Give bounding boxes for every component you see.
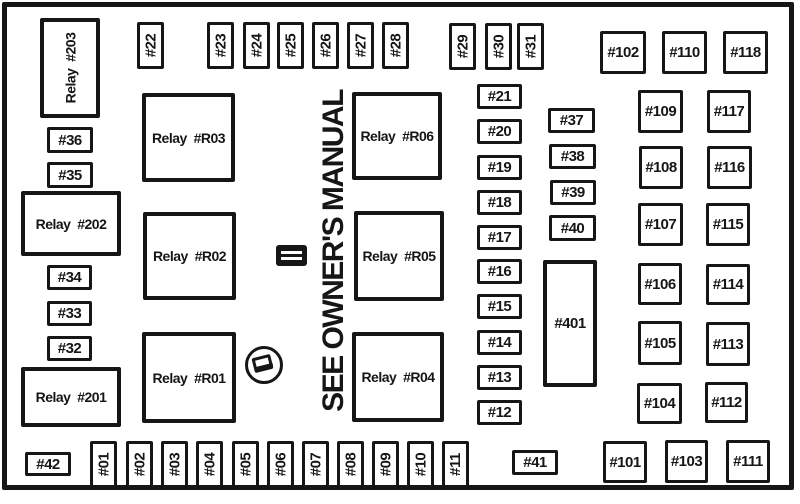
- fuse-02-label: #02: [131, 453, 148, 477]
- fuse-18-box: #18: [477, 190, 522, 215]
- fuse-40-label: #40: [561, 220, 585, 237]
- relay-203-box: Relay #203: [40, 18, 100, 118]
- fuse-27-box: #27: [347, 22, 374, 69]
- fuse-24-label: #24: [248, 34, 265, 58]
- relay-201-box: Relay #201: [21, 367, 121, 427]
- fuse-41-box: #41: [512, 450, 558, 475]
- fuse-110-label: #110: [669, 44, 700, 61]
- fuse-20-label: #20: [488, 123, 512, 140]
- fuse-17-label: #17: [488, 229, 512, 246]
- fuse-105-label: #105: [644, 335, 675, 352]
- fuse-05-box: #05: [232, 441, 259, 488]
- fuse-15-box: #15: [477, 294, 522, 319]
- fuse-36-box: #36: [47, 127, 93, 153]
- relay-r05-label: Relay #R05: [362, 248, 435, 264]
- fuse-24-box: #24: [243, 22, 270, 69]
- fuse-32-label: #32: [58, 340, 82, 357]
- fuse-106-box: #106: [638, 263, 682, 305]
- fuse-29-box: #29: [449, 23, 476, 70]
- fuse-114-box: #114: [706, 264, 750, 305]
- fuse-10-box: #10: [407, 441, 434, 488]
- fuse-puller-icon: [245, 346, 283, 384]
- fuse-33-label: #33: [58, 305, 82, 322]
- fuse-111-label: #111: [733, 453, 763, 470]
- fuse-08-label: #08: [342, 453, 359, 477]
- fuse-108-box: #108: [639, 146, 683, 189]
- fuse-35-label: #35: [58, 167, 82, 184]
- relay-r06-box: Relay #R06: [352, 92, 442, 180]
- fuse-102-label: #102: [607, 44, 638, 61]
- fuse-06-box: #06: [267, 441, 294, 488]
- fuse-15-label: #15: [488, 298, 512, 315]
- relay-r03-label: Relay #R03: [152, 130, 225, 146]
- fuse-116-label: #116: [714, 159, 745, 176]
- fuse-18-label: #18: [488, 194, 512, 211]
- fuse-26-box: #26: [312, 22, 339, 69]
- relay-r01-label: Relay #R01: [152, 370, 225, 386]
- fuse-12-box: #12: [477, 400, 522, 425]
- fuse-42-box: #42: [25, 452, 71, 476]
- fuse-05-label: #05: [237, 453, 254, 477]
- relay-r04-label: Relay #R04: [361, 369, 434, 385]
- fuse-103-label: #103: [671, 453, 702, 470]
- fuse-109-box: #109: [638, 90, 683, 133]
- fuse-115-box: #115: [706, 203, 750, 246]
- fuse-113-label: #113: [713, 336, 744, 353]
- relay-202-box: Relay #202: [21, 191, 121, 256]
- fuse-104-label: #104: [644, 395, 675, 412]
- fuse-105-box: #105: [638, 321, 682, 365]
- fuse-02-box: #02: [126, 441, 153, 488]
- fuse-16-label: #16: [488, 263, 512, 280]
- fuse-23-box: #23: [207, 22, 234, 69]
- fuse-34-box: #34: [47, 265, 92, 290]
- fuse-25-box: #25: [277, 22, 304, 69]
- relay-r03-box: Relay #R03: [142, 93, 235, 182]
- fuse-113-box: #113: [706, 322, 750, 366]
- fuse-09-label: #09: [377, 453, 394, 477]
- fuse-116-box: #116: [707, 146, 752, 189]
- fuse-28-box: #28: [382, 22, 409, 69]
- relay-r02-label: Relay #R02: [153, 248, 226, 264]
- fuse-117-box: #117: [707, 90, 751, 133]
- fuse-31-label: #31: [522, 35, 539, 59]
- fuse-102-box: #102: [600, 31, 646, 74]
- fuse-101-box: #101: [603, 441, 647, 483]
- fuse-01-label: #01: [95, 453, 112, 477]
- fuse-118-box: #118: [723, 31, 768, 74]
- fuse-27-label: #27: [352, 34, 369, 58]
- fuse-41-label: #41: [523, 454, 547, 471]
- fuse-11-box: #11: [442, 441, 469, 488]
- fuse-114-label: #114: [713, 276, 744, 293]
- fuse-13-label: #13: [488, 369, 512, 386]
- fuse-33-box: #33: [47, 301, 92, 326]
- relay-r05-box: Relay #R05: [354, 211, 444, 301]
- fuse-16-box: #16: [477, 259, 522, 284]
- fuse-12-label: #12: [488, 404, 512, 421]
- fuse-04-label: #04: [201, 453, 218, 477]
- fuse-40-box: #40: [549, 215, 596, 241]
- fuse-34-label: #34: [58, 269, 82, 286]
- fuse-06-label: #06: [272, 453, 289, 477]
- fuse-103-box: #103: [665, 440, 708, 483]
- fuse-14-box: #14: [477, 330, 522, 355]
- fuse-42-label: #42: [36, 456, 60, 473]
- fuse-19-label: #19: [488, 159, 512, 176]
- fuse-20-box: #20: [477, 119, 522, 144]
- fuse-117-label: #117: [714, 103, 745, 120]
- fuse-111-box: #111: [726, 440, 770, 483]
- fuse-symbol-slot: [281, 257, 302, 260]
- fuse-37-box: #37: [548, 108, 595, 133]
- relay-r02-box: Relay #R02: [143, 212, 236, 300]
- fuse-01-box: #01: [90, 441, 117, 488]
- fuse-101-label: #101: [609, 454, 640, 471]
- relay-201-label: Relay #201: [36, 389, 107, 405]
- fuse-22-label: #22: [142, 34, 159, 58]
- fuse-21-box: #21: [477, 84, 522, 109]
- fuse-36-label: #36: [58, 132, 82, 149]
- fuse-13-box: #13: [477, 365, 522, 390]
- see-owners-manual-note: SEE OWNER'S MANUAL: [316, 101, 352, 401]
- fuse-10-label: #10: [412, 453, 429, 477]
- fuse-112-label: #112: [711, 394, 742, 411]
- fuse-39-box: #39: [550, 180, 596, 205]
- fuse-04-box: #04: [196, 441, 223, 488]
- fuse-17-box: #17: [477, 225, 522, 250]
- relay-r01-box: Relay #R01: [142, 332, 236, 423]
- fuse-401-label: #401: [554, 315, 585, 332]
- fuse-11-label: #11: [447, 453, 464, 476]
- relay-r04-box: Relay #R04: [352, 332, 444, 422]
- fuse-23-label: #23: [212, 34, 229, 58]
- fuse-35-box: #35: [47, 162, 93, 188]
- fuse-symbol-icon: [276, 245, 307, 266]
- fuse-108-label: #108: [645, 159, 676, 176]
- fuse-03-label: #03: [166, 453, 183, 477]
- fuse-21-label: #21: [488, 88, 512, 105]
- fuse-box-diagram: Relay #203#36#35Relay #202#34#33#32Relay…: [0, 0, 800, 504]
- fuse-08-box: #08: [337, 441, 364, 488]
- fuse-38-label: #38: [561, 148, 585, 165]
- fuse-37-label: #37: [560, 112, 584, 129]
- fuse-30-label: #30: [490, 35, 507, 59]
- fuse-03-box: #03: [161, 441, 188, 488]
- relay-203-label: Relay #203: [62, 33, 78, 104]
- fuse-22-box: #22: [137, 22, 164, 69]
- fuse-09-box: #09: [372, 441, 399, 488]
- fuse-115-label: #115: [713, 216, 744, 233]
- relay-r06-label: Relay #R06: [360, 128, 433, 144]
- fuse-31-box: #31: [517, 23, 544, 70]
- fuse-07-label: #07: [307, 453, 324, 477]
- fuse-106-label: #106: [644, 276, 675, 293]
- fuse-32-box: #32: [47, 336, 92, 361]
- fuse-29-label: #29: [454, 35, 471, 59]
- fuse-118-label: #118: [730, 44, 761, 61]
- fuse-112-box: #112: [705, 382, 748, 423]
- fuse-104-box: #104: [637, 383, 682, 424]
- fuse-401-box: #401: [543, 260, 597, 387]
- fuse-30-box: #30: [485, 23, 512, 70]
- fuse-28-label: #28: [387, 34, 404, 58]
- relay-202-label: Relay #202: [36, 216, 107, 232]
- fuse-07-box: #07: [302, 441, 329, 488]
- fuse-26-label: #26: [317, 34, 334, 58]
- fuse-107-label: #107: [645, 216, 676, 233]
- fuse-19-box: #19: [477, 155, 522, 180]
- fuse-25-label: #25: [282, 34, 299, 58]
- fuse-14-label: #14: [488, 334, 512, 351]
- fuse-109-label: #109: [645, 103, 676, 120]
- fuse-39-label: #39: [561, 184, 585, 201]
- fuse-107-box: #107: [638, 203, 683, 246]
- fuse-symbol-slot: [281, 251, 302, 254]
- fuse-110-box: #110: [662, 31, 707, 74]
- fuse-38-box: #38: [549, 144, 596, 169]
